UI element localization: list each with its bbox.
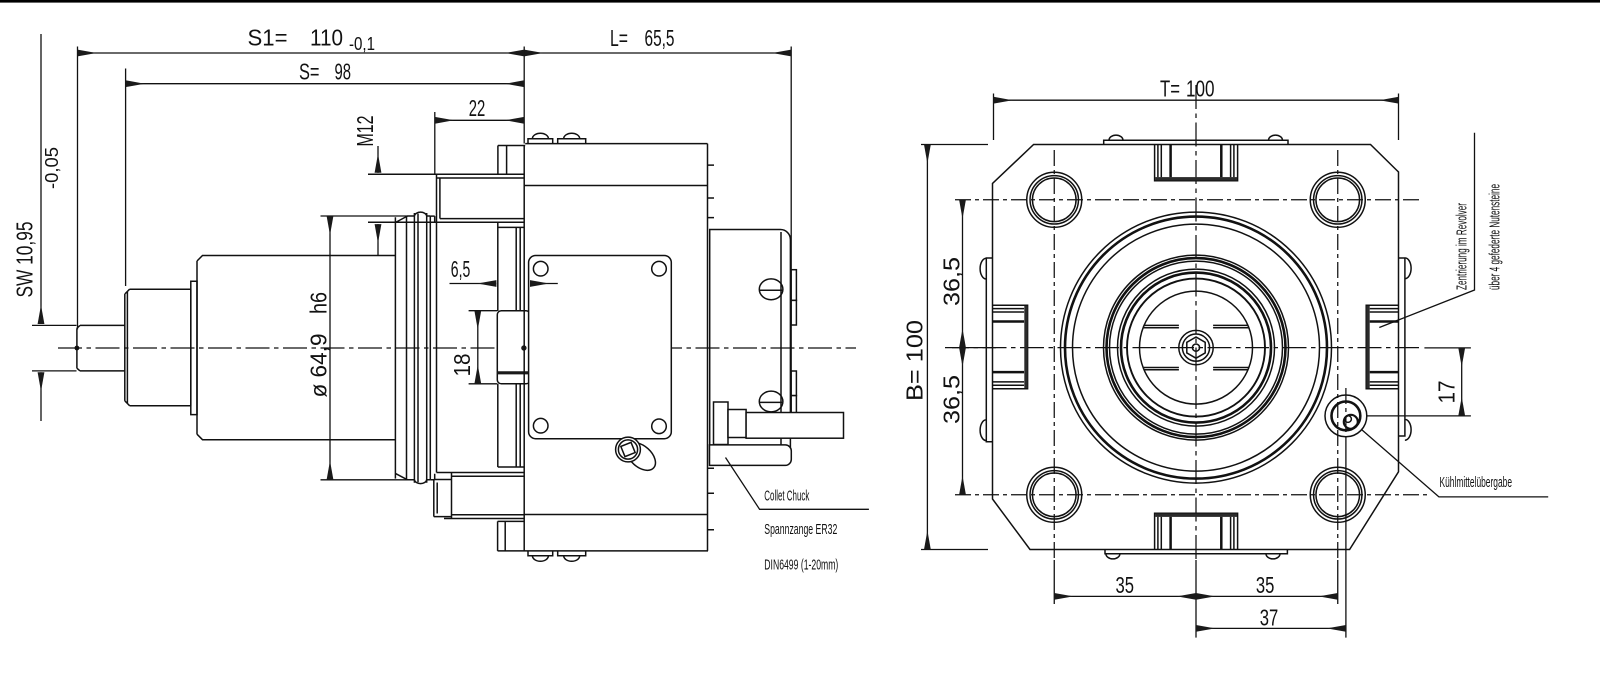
svg-text:L=: L= [610,25,628,51]
svg-text:6,5: 6,5 [451,256,471,282]
svg-text:B= 100: B= 100 [902,320,928,401]
svg-text:Kühlmittelübergabe: Kühlmittelübergabe [1440,475,1513,491]
svg-text:M12: M12 [352,116,378,147]
svg-text:über 4 gefederte Nutensteine: über 4 gefederte Nutensteine [1487,184,1504,290]
svg-text:h6: h6 [306,292,332,314]
svg-text:-0,1: -0,1 [349,33,375,54]
svg-text:ø 64,9: ø 64,9 [306,334,332,398]
svg-text:36,5: 36,5 [939,257,965,306]
svg-text:98: 98 [335,59,352,85]
svg-text:18: 18 [449,354,475,377]
svg-text:65,5: 65,5 [645,25,675,51]
svg-text:S1=: S1= [248,24,288,50]
svg-text:S=: S= [299,59,320,85]
svg-text:Collet Chuck: Collet Chuck [764,489,809,505]
svg-text:Spannzange ER32: Spannzange ER32 [764,522,837,538]
svg-text:17: 17 [1434,381,1460,404]
svg-text:110: 110 [310,24,343,50]
svg-text:22: 22 [469,95,486,121]
svg-text:100: 100 [1186,75,1215,101]
svg-text:35: 35 [1256,572,1275,598]
svg-text:36,5: 36,5 [939,375,965,424]
svg-text:SW 10,95: SW 10,95 [12,222,38,298]
svg-text:35: 35 [1116,572,1135,598]
svg-text:T=: T= [1160,75,1180,101]
svg-text:DIN6499 (1-20mm): DIN6499 (1-20mm) [764,557,838,573]
svg-text:37: 37 [1260,604,1279,630]
svg-text:Zentrierung im Revolver: Zentrierung im Revolver [1454,203,1471,290]
svg-text:-0,05: -0,05 [41,147,62,189]
